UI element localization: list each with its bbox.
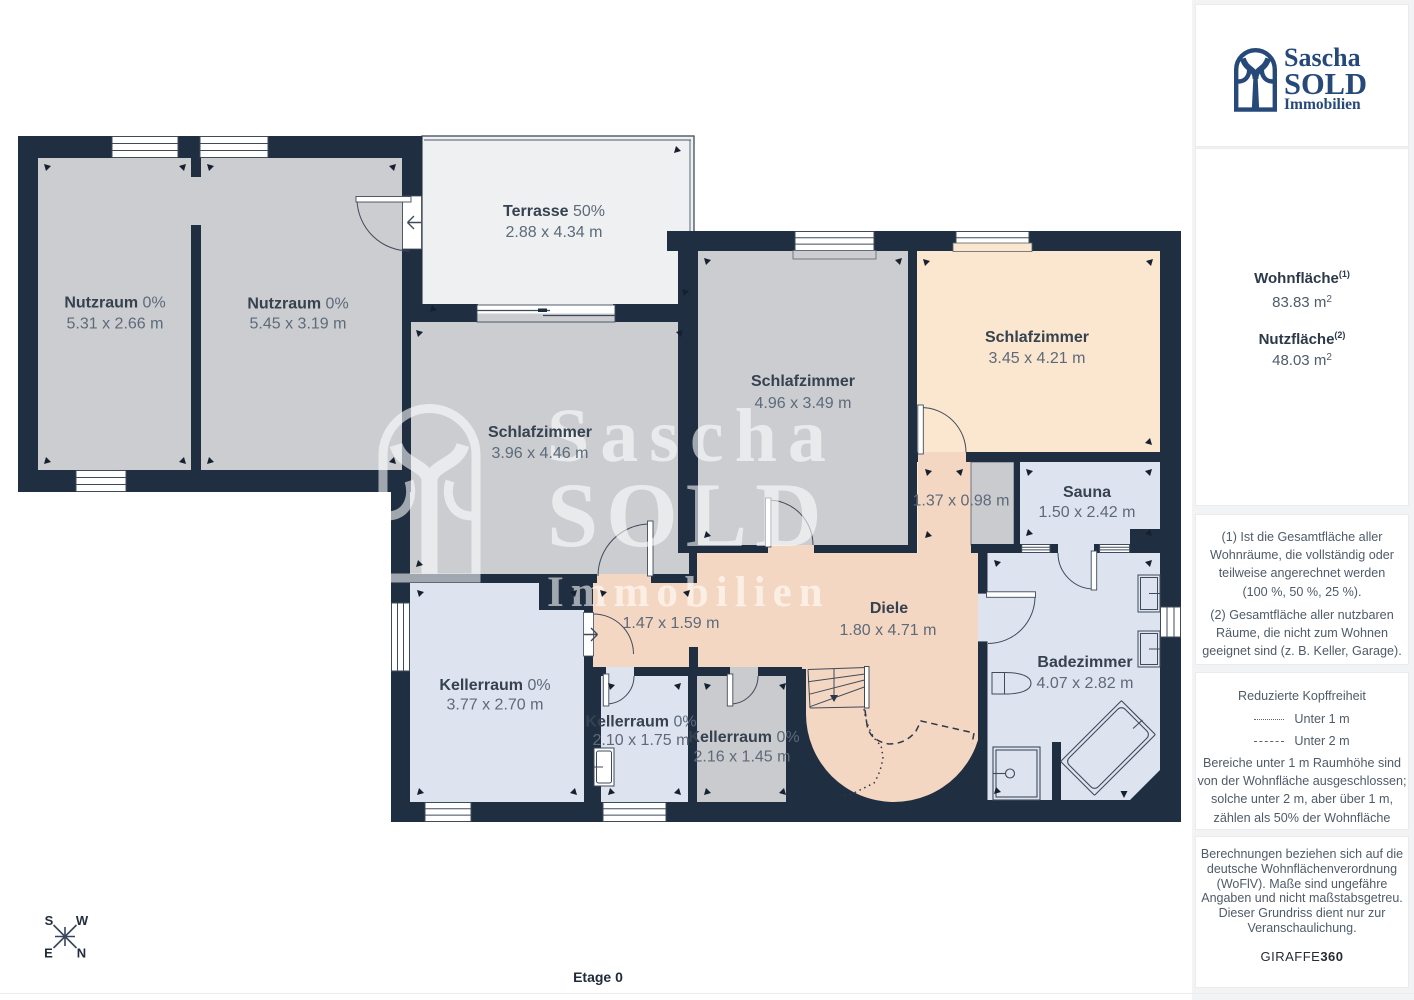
svg-text:Schlafzimmer: Schlafzimmer: [985, 329, 1089, 346]
svg-text:2.10 x 1.75 m: 2.10 x 1.75 m: [593, 732, 690, 749]
svg-text:1.50 x 2.42 m: 1.50 x 2.42 m: [1039, 504, 1136, 521]
svg-text:3.77 x 2.70 m: 3.77 x 2.70 m: [447, 697, 544, 714]
svg-text:4.07 x 2.82 m: 4.07 x 2.82 m: [1037, 675, 1134, 692]
svg-text:1.37 x 0.98 m: 1.37 x 0.98 m: [913, 493, 1010, 510]
svg-text:1.47 x 1.59 m: 1.47 x 1.59 m: [623, 615, 720, 632]
svg-text:S: S: [45, 913, 54, 928]
svg-text:W: W: [76, 913, 89, 928]
svg-text:Nutzraum 0%: Nutzraum 0%: [64, 295, 165, 312]
svg-text:SOLD: SOLD: [547, 464, 830, 566]
svg-text:E: E: [44, 946, 53, 961]
svg-text:Schlafzimmer: Schlafzimmer: [751, 373, 855, 390]
svg-text:Badezimmer: Badezimmer: [1037, 654, 1132, 671]
svg-text:1.80 x 4.71 m: 1.80 x 4.71 m: [840, 622, 937, 639]
svg-text:N: N: [77, 946, 86, 961]
svg-text:Kellerraum 0%: Kellerraum 0%: [439, 677, 550, 694]
svg-text:Sauna: Sauna: [1063, 484, 1111, 501]
svg-text:2.88 x 4.34 m: 2.88 x 4.34 m: [506, 224, 603, 241]
svg-text:Schlafzimmer: Schlafzimmer: [488, 424, 592, 441]
svg-text:2.16 x 1.45 m: 2.16 x 1.45 m: [694, 749, 791, 766]
svg-text:5.45 x 3.19 m: 5.45 x 3.19 m: [250, 316, 347, 333]
svg-text:4.96 x 3.49 m: 4.96 x 3.49 m: [755, 395, 852, 412]
svg-text:3.96 x 4.46 m: 3.96 x 4.46 m: [492, 445, 589, 462]
svg-text:5.31 x 2.66 m: 5.31 x 2.66 m: [67, 316, 164, 333]
svg-text:3.45 x 4.21 m: 3.45 x 4.21 m: [989, 350, 1086, 367]
svg-text:Terrasse 50%: Terrasse 50%: [503, 203, 605, 220]
svg-text:Kellerraum 0%: Kellerraum 0%: [688, 729, 799, 746]
svg-text:Etage 0: Etage 0: [573, 969, 623, 985]
svg-text:Immobilien: Immobilien: [1284, 96, 1361, 112]
svg-text:Diele: Diele: [870, 600, 908, 617]
svg-text:Kellerraum 0%: Kellerraum 0%: [585, 714, 696, 731]
svg-text:Nutzraum 0%: Nutzraum 0%: [247, 296, 348, 313]
